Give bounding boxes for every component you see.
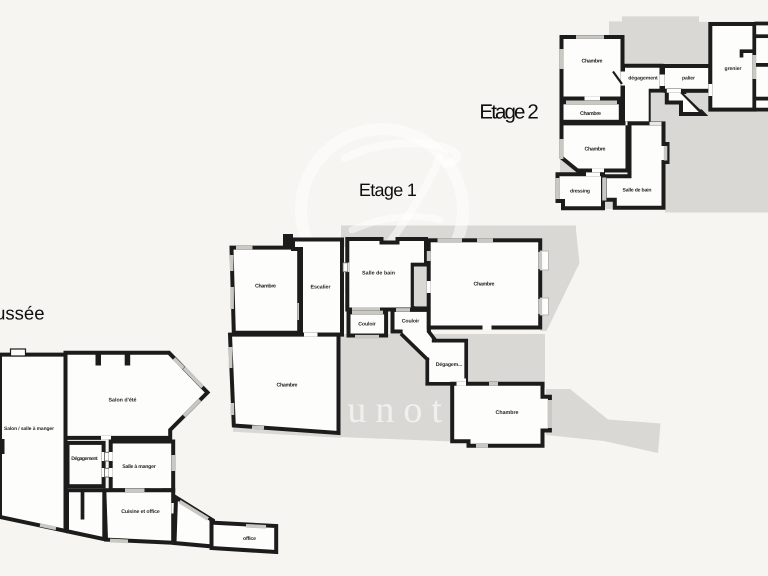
svg-text:Cuisine et office: Cuisine et office xyxy=(121,509,160,515)
svg-text:Dégagement: Dégagement xyxy=(71,456,98,462)
svg-text:Salon d'été: Salon d'été xyxy=(109,398,137,404)
svg-text:palier: palier xyxy=(682,75,695,81)
svg-text:dressing: dressing xyxy=(570,189,590,195)
svg-text:Chambre: Chambre xyxy=(585,147,606,153)
svg-text:dégagement: dégagement xyxy=(628,75,658,81)
svg-text:Salle de bain: Salle de bain xyxy=(362,271,395,277)
svg-text:grenier: grenier xyxy=(725,66,742,72)
svg-text:Rez-de-chaussée: Rez-de-chaussée xyxy=(0,302,45,323)
svg-text:Salle de bain: Salle de bain xyxy=(623,188,652,194)
svg-text:Escalier: Escalier xyxy=(311,285,331,291)
svg-text:junot: junot xyxy=(326,389,451,431)
svg-text:office: office xyxy=(243,536,256,542)
svg-text:Etage 2: Etage 2 xyxy=(479,101,538,124)
svg-text:Salle à manger: Salle à manger xyxy=(122,464,156,470)
svg-text:Salon / salle à manger: Salon / salle à manger xyxy=(4,426,54,432)
svg-text:Chambre: Chambre xyxy=(255,284,276,290)
svg-text:Couloir: Couloir xyxy=(402,319,420,325)
svg-text:Couloir: Couloir xyxy=(358,322,376,328)
svg-text:Chambre: Chambre xyxy=(277,383,298,389)
svg-text:Chambre: Chambre xyxy=(582,59,603,65)
svg-text:Chambre: Chambre xyxy=(474,282,495,288)
svg-text:Dégagem...: Dégagem... xyxy=(436,362,463,368)
svg-text:Chambre: Chambre xyxy=(496,410,519,416)
svg-text:Etage 1: Etage 1 xyxy=(359,180,417,200)
svg-text:Chambre: Chambre xyxy=(580,111,601,117)
